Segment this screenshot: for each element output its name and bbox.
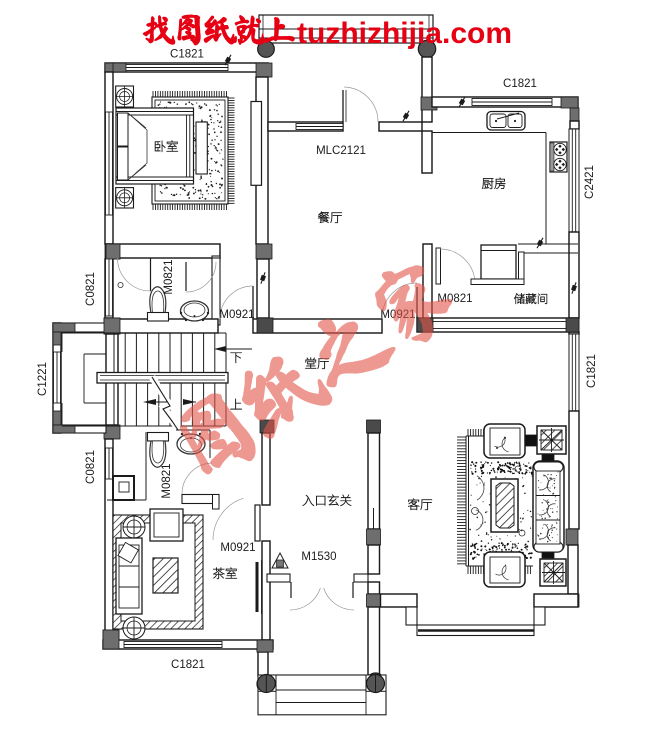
svg-text:C0821: C0821 (85, 272, 97, 306)
svg-text:C1821: C1821 (586, 354, 598, 388)
svg-text:MLC2121: MLC2121 (316, 145, 366, 157)
svg-text:C2421: C2421 (584, 165, 596, 199)
svg-text:M0821: M0821 (163, 259, 175, 294)
svg-text:C1821: C1821 (503, 78, 537, 90)
svg-text:C1821: C1821 (170, 49, 204, 61)
svg-text:M0921: M0921 (219, 309, 254, 321)
svg-text:M0921: M0921 (220, 542, 255, 554)
svg-text:C0821: C0821 (85, 450, 97, 484)
svg-text:tuzhizhijia.com: tuzhizhijia.com (297, 17, 512, 50)
svg-text:C1221: C1221 (37, 362, 49, 396)
svg-text:M0821: M0821 (161, 463, 173, 498)
svg-text:M1530: M1530 (301, 551, 336, 563)
svg-text:C1821: C1821 (171, 659, 205, 671)
